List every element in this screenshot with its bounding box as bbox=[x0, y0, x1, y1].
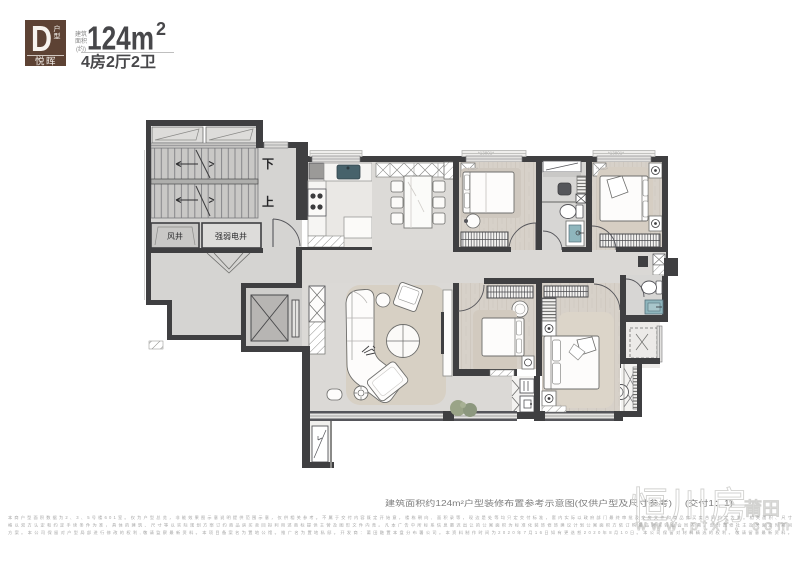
svg-text:户: 户 bbox=[54, 24, 61, 33]
svg-text:2: 2 bbox=[156, 19, 166, 39]
svg-text:D: D bbox=[31, 18, 52, 59]
svg-text:*1380*: *1380* bbox=[596, 166, 608, 171]
svg-text:*13801*: *13801* bbox=[478, 151, 494, 156]
svg-text:下: 下 bbox=[262, 157, 274, 171]
svg-text:上: 上 bbox=[262, 194, 274, 209]
svg-text:型: 型 bbox=[54, 32, 61, 41]
svg-text:4房2厅2卫: 4房2厅2卫 bbox=[81, 52, 157, 71]
svg-text:强弱电井: 强弱电井 bbox=[215, 231, 247, 241]
svg-text:本商户型面积数据为2、3、5号楼601室。仅为户型总览，非能: 本商户型面积数据为2、3、5号楼601室。仅为户型总览，非能效果图示意说明提供范… bbox=[8, 514, 792, 521]
svg-text:(约): (约) bbox=[76, 45, 86, 53]
svg-text:*13801*: *13801* bbox=[608, 151, 624, 156]
svg-text:建筑: 建筑 bbox=[75, 30, 87, 38]
svg-text:格以双方认定和约定手续条件为准，具体的建筑、尺寸等以实际规划: 格以双方认定和约定手续条件为准，具体的建筑、尺寸等以实际规划方案订约商品房买卖回… bbox=[8, 522, 792, 529]
svg-text:124m: 124m bbox=[87, 20, 154, 57]
svg-text:*1380*: *1380* bbox=[466, 166, 478, 171]
svg-text:风井: 风井 bbox=[167, 231, 183, 241]
svg-text:悦晖: 悦晖 bbox=[35, 56, 57, 68]
svg-text:面积: 面积 bbox=[75, 37, 87, 45]
